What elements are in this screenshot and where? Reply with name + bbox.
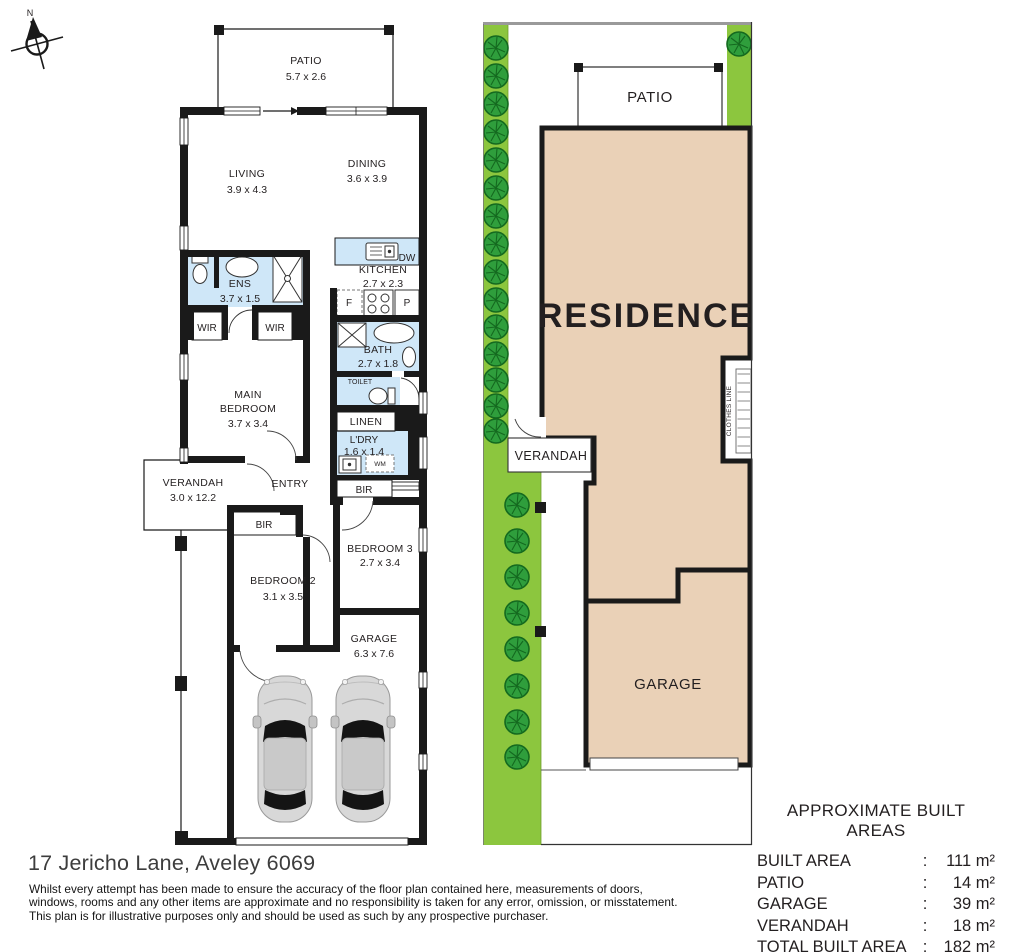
shower-icon — [273, 255, 302, 302]
dining-dims: 3.6 x 3.9 — [347, 173, 387, 185]
north-arrow-icon: N — [11, 8, 63, 69]
wir-right-label: WIR — [265, 323, 284, 334]
site-plan: CLOTHES LINE PATIO RESIDENCE VERANDAH GA… — [483, 22, 754, 845]
basin-icon — [226, 257, 258, 277]
bir-bed2-label: BIR — [256, 520, 273, 531]
toilet-icon — [369, 388, 395, 404]
ens-dims: 3.7 x 1.5 — [220, 293, 260, 305]
row-separator: : — [917, 937, 933, 952]
wir-left-label: WIR — [197, 323, 216, 334]
row-value: 39 m² — [933, 894, 995, 916]
disclaimer-line-3: This plan is for illustrative purposes o… — [29, 910, 677, 923]
bedroom3-label: BEDROOM 3 — [347, 543, 413, 555]
row-label: VERANDAH — [757, 916, 917, 938]
main-bedroom-label-1: MAIN — [234, 389, 261, 401]
bedroom2-dims: 3.1 x 3.5 — [263, 591, 303, 603]
main-bedroom-label-2: BEDROOM — [220, 403, 276, 415]
bedroom3-dims: 2.7 x 3.4 — [360, 557, 400, 569]
laundry-dims: 1.6 x 1.4 — [344, 446, 384, 458]
table-row: VERANDAH : 18 m² — [757, 916, 995, 938]
svg-text:N: N — [27, 8, 34, 18]
site-patio-label: PATIO — [627, 89, 673, 106]
row-label: PATIO — [757, 873, 917, 895]
bir-hall-label: BIR — [356, 485, 373, 496]
toilet-label: TOILET — [348, 379, 373, 386]
linen-label: LINEN — [350, 416, 382, 428]
disclaimer-text: Whilst every attempt has been made to en… — [29, 883, 677, 923]
site-residence-label: RESIDENCE — [538, 297, 754, 335]
ens-label: ENS — [229, 278, 252, 290]
kitchen-label: KITCHEN — [359, 264, 407, 276]
verandah-dims: 3.0 x 12.2 — [170, 492, 216, 504]
detailed-floor-plan: PATIO 5.7 x 2.6 LIVING 3.9 x 4.3 DINING … — [144, 25, 427, 845]
bathtub-icon — [374, 323, 414, 343]
car-icon — [331, 676, 395, 822]
garage-label: GARAGE — [351, 633, 398, 645]
laundry-label: L'DRY — [350, 435, 379, 446]
post — [535, 502, 546, 513]
built-areas-title: APPROXIMATE BUILT AREAS — [757, 801, 995, 841]
site-verandah-label: VERANDAH — [515, 449, 588, 463]
garage-dims: 6.3 x 7.6 — [354, 648, 394, 660]
bath-dims: 2.7 x 1.8 — [358, 358, 398, 370]
patio-dims: 5.7 x 2.6 — [286, 71, 326, 83]
cooktop-icon — [364, 290, 393, 316]
living-label: LIVING — [229, 168, 265, 180]
shower-icon — [338, 323, 366, 347]
wm-label: WM — [374, 461, 386, 468]
row-value: 182 m² — [933, 937, 995, 952]
site-garage-door — [590, 758, 738, 770]
table-row: TOTAL BUILT AREA : 182 m² — [757, 937, 995, 952]
bath-label: BATH — [364, 344, 392, 356]
car-icon — [253, 676, 317, 822]
disclaimer-line-1: Whilst every attempt has been made to en… — [29, 883, 677, 896]
living-dims: 3.9 x 4.3 — [227, 184, 267, 196]
row-separator: : — [917, 916, 933, 938]
verandah-label: VERANDAH — [163, 477, 224, 489]
table-row: BUILT AREA : 111 m² — [757, 851, 995, 873]
property-address: 17 Jericho Lane, Aveley 6069 — [28, 851, 315, 876]
built-areas-table: APPROXIMATE BUILT AREAS BUILT AREA : 111… — [757, 801, 995, 952]
row-label: BUILT AREA — [757, 851, 917, 873]
row-separator: : — [917, 873, 933, 895]
door-arc — [229, 310, 252, 333]
dw-label: DW — [399, 253, 416, 264]
patio-label: PATIO — [290, 55, 321, 67]
table-row: PATIO : 14 m² — [757, 873, 995, 895]
row-separator: : — [917, 851, 933, 873]
table-row: GARAGE : 39 m² — [757, 894, 995, 916]
row-label: GARAGE — [757, 894, 917, 916]
row-value: 18 m² — [933, 916, 995, 938]
fridge-label: F — [346, 298, 352, 309]
site-garage-label: GARAGE — [634, 676, 702, 693]
entry-label: ENTRY — [272, 478, 309, 490]
row-value: 111 m² — [933, 851, 995, 873]
disclaimer-line-2: windows, rooms and any other items are a… — [29, 896, 677, 909]
sink-icon — [366, 243, 398, 260]
dining-label: DINING — [348, 158, 387, 170]
kitchen-dims: 2.7 x 2.3 — [363, 278, 403, 290]
room-labels: PATIO 5.7 x 2.6 LIVING 3.9 x 4.3 DINING … — [163, 55, 416, 660]
row-separator: : — [917, 894, 933, 916]
row-value: 14 m² — [933, 873, 995, 895]
basin-icon — [403, 347, 416, 367]
door-arc — [401, 378, 419, 399]
sliding-door-arrow — [263, 107, 299, 115]
laundry-trough-icon — [339, 456, 361, 473]
pantry-label: P — [404, 298, 411, 309]
bedroom2-label: BEDROOM 2 — [250, 575, 316, 587]
floorplan-page: N — [0, 0, 1024, 952]
post — [535, 626, 546, 637]
row-label: TOTAL BUILT AREA — [757, 937, 917, 952]
clothes-line-label: CLOTHES LINE — [726, 385, 733, 436]
garage-door-opening — [236, 838, 408, 845]
main-bedroom-dims: 3.7 x 3.4 — [228, 418, 268, 430]
